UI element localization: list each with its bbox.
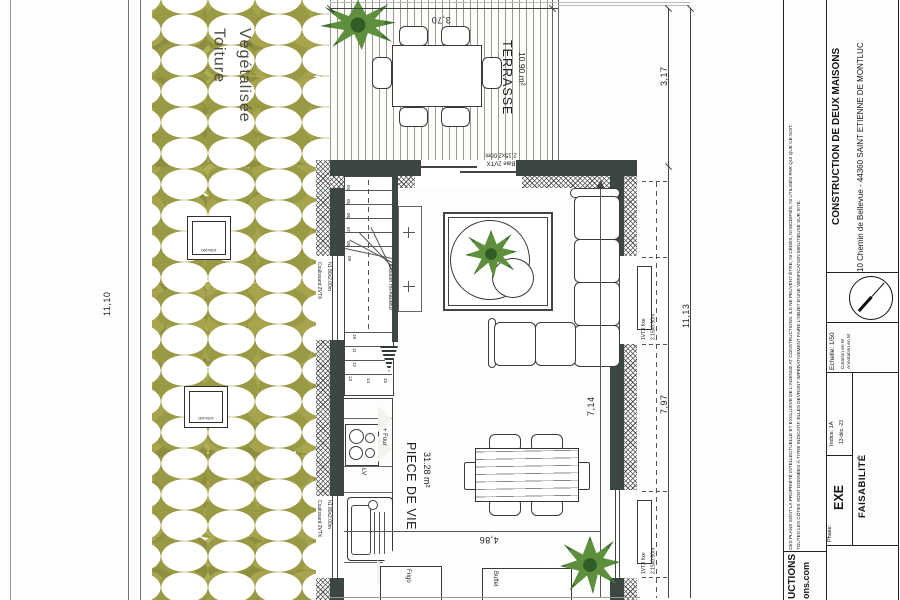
- titleblock-divider: [826, 272, 898, 273]
- fixed-label-line2: 2.15x0.90m: [651, 314, 657, 340]
- dimension-interior-width: 4,86: [472, 535, 506, 545]
- titleblock-divider: [826, 322, 898, 323]
- phase-value: EXE: [832, 466, 849, 510]
- terrace-chair: [441, 107, 470, 127]
- stair-number: 15: [383, 378, 388, 383]
- disclaimer-line2: TOUTES LES CÔTES SONT DONNÉES À TITRE IN…: [796, 200, 801, 550]
- extension-dash: [642, 257, 668, 258]
- skylight: 100x100: [184, 386, 228, 428]
- dimension-line: [330, 8, 558, 9]
- date-field: 13-déc.-23: [839, 396, 848, 444]
- titleblock-border: [826, 0, 827, 600]
- titleblock-divider: [826, 545, 898, 546]
- wall-top-left: [330, 160, 415, 176]
- skylight-label: 100x100: [189, 416, 223, 421]
- stair-number: 06: [346, 213, 351, 218]
- dimension-line: [668, 8, 669, 598]
- stair-number: 07: [346, 227, 351, 232]
- disclaimer-text: CES PLANS SONT LA PROPRIÉTÉ INTELLECTUEL…: [787, 4, 803, 550]
- dimension-house-right: 7,97: [659, 370, 673, 414]
- counter-line: [344, 466, 392, 467]
- titleblock-border: [783, 0, 784, 600]
- oven-label: + Four: [381, 428, 391, 464]
- sliding-label-line1: Coulissant 2VTX: [316, 500, 322, 537]
- drainer-line: [384, 512, 385, 554]
- logo-text: ons.com: [801, 555, 814, 599]
- extension-dash: [642, 181, 668, 182]
- sofa-cushion: [535, 322, 576, 366]
- dimension-terrace-depth: 3,17: [659, 46, 673, 86]
- cabinet-gable-icon: [486, 551, 516, 568]
- dining-table: [475, 448, 579, 502]
- burner-icon: [349, 446, 363, 460]
- terrace-area: 10.90 m²: [517, 52, 529, 122]
- stair-number: 04: [346, 185, 351, 190]
- stair-flight-line: [368, 180, 369, 330]
- titleblock-divider: [826, 455, 852, 456]
- fixed-window-label: 1VTX fixe2.15x0.90m: [640, 262, 658, 340]
- extension-dash: [642, 491, 668, 492]
- sliding-window-label: Coulissant 2VTXh1.80x2.00m: [314, 262, 334, 340]
- fixed-label-line2: 2.15x0.90m: [651, 548, 657, 574]
- sink-basin: [351, 505, 371, 555]
- dimension-interior-length: 7,14: [586, 376, 599, 416]
- dimension-left-total: 11,10: [102, 272, 116, 316]
- stair-number: 08: [346, 241, 351, 246]
- cooktop: [345, 424, 379, 466]
- stage-label: FAISABILITÉ: [857, 402, 873, 518]
- interior-dimension-line: [600, 182, 601, 598]
- sliding-label-line2: h1.80x2.00m: [326, 262, 332, 291]
- console-table: [398, 206, 422, 312]
- sofa-cushion: [574, 196, 620, 240]
- living-room-label: PIECE DE VIE: [404, 442, 422, 532]
- extension-dash: [642, 344, 668, 345]
- cabinet-gable-icon: [532, 551, 562, 568]
- half-height-partition-label: Cloison mi-hauteur: [387, 264, 399, 340]
- terrace-chair: [372, 57, 392, 89]
- sliding-label-line1: Coulissant 2VTX: [316, 262, 322, 299]
- interior-dimension-line: [344, 531, 600, 532]
- bay-jamb: [415, 160, 421, 176]
- skylight-label: 100x100: [192, 248, 226, 253]
- stair-number: 12: [352, 362, 357, 367]
- project-address: 10 Chemin de Bellevue - 44360 SAINT ETIE…: [856, 10, 870, 272]
- terrace-edge-line: [552, 0, 553, 162]
- scale-label: Echelle:: [829, 347, 836, 370]
- project-title: CONSTRUCTION DE DEUX MAISONS: [831, 26, 847, 246]
- sofa-cushion: [494, 322, 536, 366]
- sofa-cushion: [574, 239, 620, 283]
- roof-overhang-line: [558, 5, 690, 6]
- sofa-cushion: [574, 325, 620, 367]
- north-compass-icon: [849, 276, 893, 320]
- sliding-window-label: Coulissant 2VTXh1.80x2.00m: [314, 500, 334, 578]
- terrace-chair: [482, 57, 502, 89]
- console-mark: [408, 227, 409, 238]
- indice-value: 1A: [829, 422, 835, 429]
- floor-plan-sheet: 11,10 ToitureVégétalisée 100x100 100x100…: [0, 0, 900, 600]
- scale-field: Echelle: 1/50: [829, 325, 841, 370]
- counter-line: [344, 492, 392, 493]
- burner-icon: [365, 433, 375, 443]
- compass-needle: [871, 283, 884, 298]
- titleblock-divider: [852, 372, 853, 545]
- living-room-area: 31.28 m²: [422, 452, 436, 518]
- indice-label: Indice:: [829, 430, 835, 446]
- bay-sliding-rail: [460, 171, 522, 173]
- property-line: [140, 0, 141, 600]
- console-mark: [408, 281, 409, 292]
- sliding-label-line2: h1.80x2.00m: [326, 500, 332, 529]
- counter-line: [344, 398, 392, 399]
- glazing-line: [337, 256, 338, 340]
- titleblock-divider: [783, 551, 826, 552]
- console-mark: [403, 286, 415, 287]
- stair-number: 11: [352, 348, 357, 353]
- dimension-terrace-width: 3,70: [424, 15, 458, 25]
- phase-label: Phase:: [827, 512, 837, 542]
- wall-insulation: [522, 176, 624, 188]
- bay-label: Baie 2VTX2.15x2.00m: [468, 150, 534, 166]
- disclaimer-line1: CES PLANS SONT LA PROPRIÉTÉ INTELLECTUEL…: [788, 124, 793, 550]
- sheet-frame-line: [10, 0, 11, 600]
- drainer-line: [379, 512, 380, 554]
- scale-value: 1/50: [829, 332, 836, 345]
- terrace-chair: [399, 107, 428, 127]
- titleblock-border: [898, 0, 899, 600]
- faucet-icon: [368, 500, 378, 510]
- bay-label-line2: 2.15x2.00m: [485, 152, 516, 158]
- dimension-right-total: 11,13: [681, 280, 695, 328]
- fixed-label-line1: 1VTX fixe: [641, 318, 647, 340]
- green-roof-label: ToitureVégétalisée: [206, 28, 264, 168]
- roof-overhang-line: [330, 2, 690, 3]
- terrace-table: [392, 45, 482, 107]
- dishwasher-label: LV: [360, 468, 372, 490]
- stair-number: 14: [366, 378, 371, 383]
- drainer-line: [374, 512, 375, 554]
- roof-label-line2: Végétalisée: [236, 28, 253, 123]
- compass-needle: [857, 296, 872, 312]
- stair-number: 09: [347, 256, 352, 261]
- terrace-chair: [399, 26, 428, 46]
- terrace-label: TERRASSE: [500, 40, 516, 144]
- burner-icon: [365, 448, 375, 458]
- glazing-line: [615, 490, 616, 578]
- buffet-label: Buffet: [492, 571, 504, 600]
- glazing-line: [619, 490, 620, 578]
- extension-dash: [642, 577, 668, 578]
- wall-top-right: [522, 160, 637, 176]
- side-table-circle: [492, 258, 534, 298]
- cut-line: [330, 597, 640, 598]
- sofa-cushion: [574, 282, 620, 326]
- burner-icon: [349, 429, 364, 444]
- fixed-label-line1: 1VTX fixe: [641, 552, 647, 574]
- bay-label-line1: Baie 2VTX: [487, 160, 516, 166]
- fridge-label: Frigo: [405, 569, 417, 599]
- stair-number: 05: [346, 199, 351, 204]
- roof-label-line1: Toiture: [211, 28, 228, 83]
- fixed-window-label: 1VTX fixe2.15x0.90m: [640, 496, 658, 574]
- titleblock-divider: [826, 372, 898, 373]
- skylight: 100x100: [187, 216, 231, 260]
- stair-tread-line: [344, 332, 392, 333]
- stair-number: 10: [352, 334, 357, 339]
- bay-sliding-rail: [415, 166, 477, 168]
- glazing-line: [337, 496, 338, 578]
- stair-tread-line: [344, 374, 392, 375]
- property-line: [128, 0, 129, 600]
- stair-number: 13: [348, 376, 353, 381]
- annotation-note: Annotation en M: [847, 327, 856, 369]
- logo-text: UCTIONS: [787, 553, 801, 599]
- terrace-chair: [441, 26, 470, 46]
- stair-tread-line: [344, 360, 392, 361]
- console-mark: [403, 232, 415, 233]
- terrace-edge-line: [558, 0, 559, 162]
- cabinet-gable-icon: [410, 548, 440, 566]
